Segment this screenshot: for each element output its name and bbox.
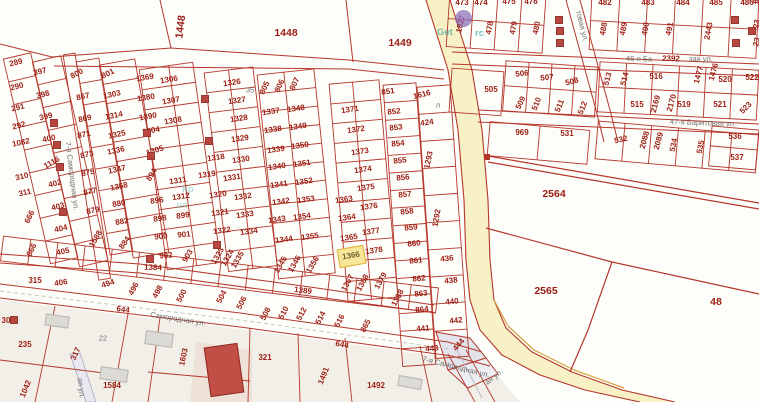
street-label: 35 bbox=[246, 86, 254, 94]
building-footprint bbox=[556, 39, 564, 47]
top-block-lines bbox=[0, 0, 444, 79]
parcel-label-506[interactable]: 506 bbox=[515, 69, 529, 78]
building-footprint bbox=[201, 95, 209, 103]
parcel-label-1584[interactable]: 1584 bbox=[103, 382, 121, 390]
parcel-label-438[interactable]: 438 bbox=[444, 276, 458, 285]
parcel-label-443[interactable]: 443 bbox=[425, 344, 439, 353]
parcel-label-505[interactable]: 505 bbox=[484, 86, 497, 94]
parcel-label-863[interactable]: 863 bbox=[414, 289, 428, 298]
parcel-label-856[interactable]: 856 bbox=[396, 173, 410, 182]
parcel-label-852[interactable]: 852 bbox=[387, 107, 401, 116]
parcel-label-485[interactable]: 485 bbox=[709, 0, 722, 7]
building-footprint bbox=[146, 255, 154, 263]
parcel-label-519[interactable]: 519 bbox=[677, 101, 690, 109]
parcel-label-537[interactable]: 537 bbox=[730, 154, 743, 162]
watermark-logo-icon bbox=[455, 10, 472, 27]
parcel-label-474[interactable]: 474 bbox=[474, 0, 487, 7]
street-label: 47-я Баритовая ул. bbox=[670, 118, 736, 128]
parcel-label-520[interactable]: 520 bbox=[718, 76, 731, 84]
parcel-label-861[interactable]: 861 bbox=[409, 256, 423, 265]
parcel-label-853[interactable]: 853 bbox=[389, 123, 403, 132]
parcel-label-48[interactable]: 48 bbox=[753, 0, 759, 6]
building-footprint bbox=[143, 129, 151, 137]
watermark-text-left: Get bbox=[437, 28, 453, 38]
parcel-label-507[interactable]: 507 bbox=[540, 73, 554, 82]
parcel-label-855[interactable]: 855 bbox=[393, 156, 407, 165]
street-label: л bbox=[436, 101, 440, 109]
building-footprint bbox=[10, 316, 18, 324]
watermark-text-right: rc bbox=[475, 29, 484, 39]
building-footprint bbox=[748, 27, 756, 35]
area-label-1448[interactable]: 1448 bbox=[274, 28, 297, 39]
large-building-footprint bbox=[204, 343, 245, 397]
cadastral-map-canvas[interactable]: 2892902912921082310311666866397398399400… bbox=[0, 0, 759, 402]
parcel-label-854[interactable]: 854 bbox=[391, 139, 405, 148]
building-footprint bbox=[50, 119, 58, 127]
street-label: зая ул. bbox=[689, 55, 713, 63]
building-footprint bbox=[59, 208, 67, 216]
building-footprint bbox=[53, 141, 61, 149]
parcel-label-483[interactable]: 483 bbox=[641, 0, 654, 7]
parcel-label-476[interactable]: 476 bbox=[524, 0, 537, 6]
parcel-label-436[interactable]: 436 bbox=[440, 254, 454, 263]
parcel-label-858[interactable]: 858 bbox=[400, 207, 414, 216]
parcel-label-1492[interactable]: 1492 bbox=[367, 382, 385, 390]
parcel-label-522[interactable]: 522 bbox=[745, 74, 758, 82]
parcel-label-901[interactable]: 901 bbox=[177, 230, 191, 239]
parcel-label-475[interactable]: 475 bbox=[502, 0, 515, 6]
parcel-label-442[interactable]: 442 bbox=[449, 316, 463, 325]
watermark-fragment-1: Кр bbox=[182, 185, 194, 195]
parcel-label-23[interactable]: 23 bbox=[752, 37, 759, 47]
parcel-label-235[interactable]: 235 bbox=[18, 341, 31, 349]
parcel-label-857[interactable]: 857 bbox=[398, 190, 412, 199]
building-footprint bbox=[205, 137, 213, 145]
building-footprint bbox=[731, 16, 739, 24]
parcel-label-321[interactable]: 321 bbox=[258, 354, 271, 362]
building-footprint bbox=[732, 39, 740, 47]
parcel-label-482[interactable]: 482 bbox=[598, 0, 611, 7]
parcel-label-473[interactable]: 473 bbox=[455, 0, 468, 7]
building-footprint bbox=[556, 27, 564, 35]
road-number-644[interactable]: 644 bbox=[116, 305, 130, 315]
street-label: ая ул. bbox=[76, 377, 86, 398]
parcel-label-864[interactable]: 864 bbox=[415, 305, 429, 314]
area-label-2564[interactable]: 2564 bbox=[542, 189, 565, 200]
parcel-label-531[interactable]: 531 bbox=[560, 130, 573, 138]
parcel-label-516[interactable]: 516 bbox=[649, 73, 662, 81]
watermark-fragment-2: ол bbox=[176, 201, 188, 211]
street-label: 22 bbox=[99, 334, 107, 342]
building-footprint bbox=[56, 163, 64, 171]
building-footprint bbox=[555, 16, 563, 24]
road-number-2392[interactable]: 2392 bbox=[662, 55, 680, 63]
parcel-label-521[interactable]: 521 bbox=[713, 101, 726, 109]
area-label-2565[interactable]: 2565 bbox=[534, 286, 557, 297]
parcel-label-536[interactable]: 536 bbox=[728, 133, 741, 141]
area-label-48[interactable]: 48 bbox=[710, 297, 722, 308]
field-boundaries bbox=[486, 156, 759, 372]
parcel-label-900[interactable]: 900 bbox=[154, 232, 168, 241]
parcel-label-859[interactable]: 859 bbox=[404, 223, 418, 232]
area-label-1448[interactable]: 1448 bbox=[174, 15, 187, 39]
building-footprint bbox=[213, 241, 221, 249]
parcel-label-515[interactable]: 515 bbox=[630, 101, 643, 109]
building-footprint bbox=[147, 152, 155, 160]
parcel-label-860[interactable]: 860 bbox=[407, 239, 421, 248]
road-number-1384[interactable]: 1384 bbox=[144, 264, 162, 273]
parcel-label-315[interactable]: 315 bbox=[28, 277, 41, 285]
parcel-label-969[interactable]: 969 bbox=[515, 129, 528, 137]
parcel-label-440[interactable]: 440 bbox=[445, 297, 459, 306]
parcel-label-902[interactable]: 902 bbox=[159, 251, 173, 260]
parcel-label-441[interactable]: 441 bbox=[416, 324, 430, 333]
street-label: 46-я Ба bbox=[626, 55, 652, 63]
parcel-label-484[interactable]: 484 bbox=[676, 0, 689, 7]
area-label-1449[interactable]: 1449 bbox=[388, 38, 411, 49]
parcel-label-862[interactable]: 862 bbox=[412, 274, 426, 283]
